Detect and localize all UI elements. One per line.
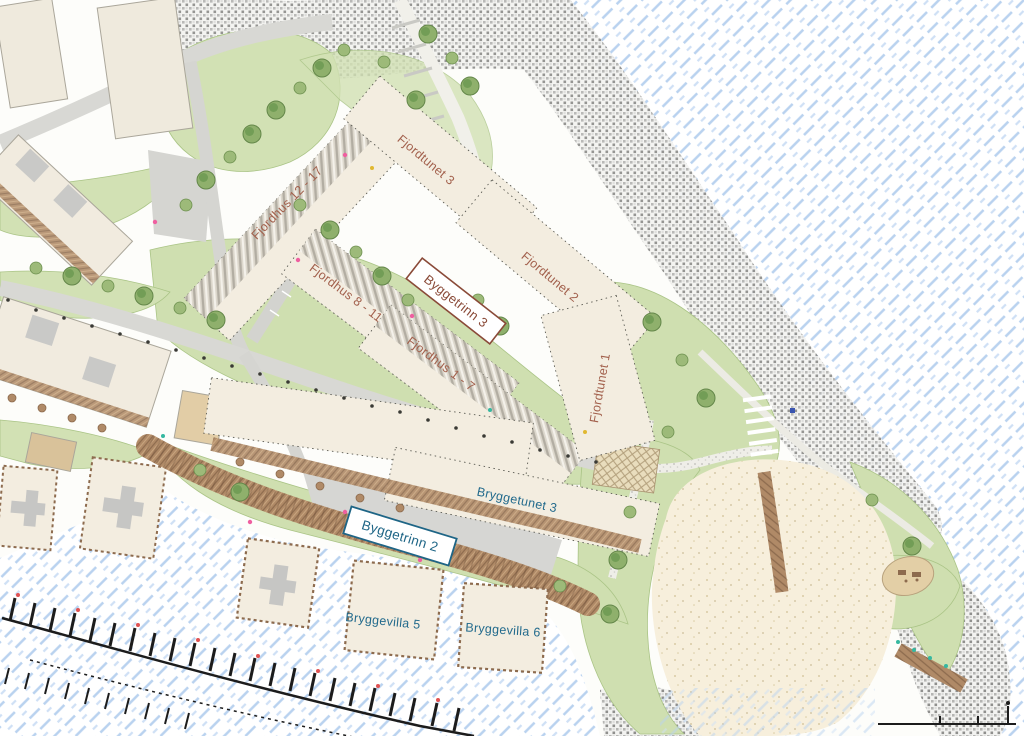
site-plan: Fjordhus 12 - 17 Fjordtunet 3 Fjordhus 8… [0,0,1024,736]
building-bryggevilla-5 [345,561,444,660]
site-plan-map: Fjordhus 12 - 17 Fjordtunet 3 Fjordhus 8… [0,0,1024,736]
sign-marker-icon [790,408,795,413]
